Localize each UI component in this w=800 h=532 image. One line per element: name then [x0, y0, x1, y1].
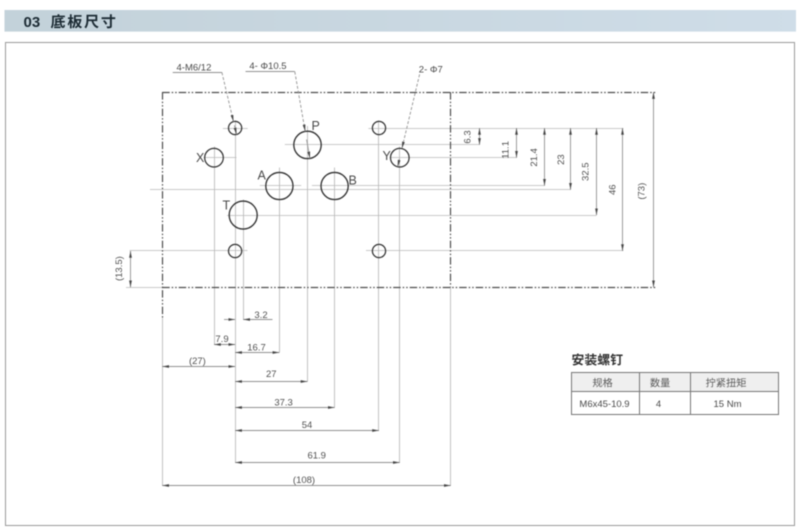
svg-text:T: T [223, 199, 231, 213]
svg-text:Y: Y [383, 149, 392, 163]
svg-text:B: B [349, 174, 357, 188]
svg-text:(73): (73) [637, 183, 648, 200]
svg-text:P: P [312, 119, 320, 133]
svg-text:61.9: 61.9 [307, 451, 326, 462]
svg-text:21.4: 21.4 [529, 148, 540, 167]
svg-text:46: 46 [608, 184, 619, 195]
svg-text:(13.5): (13.5) [114, 256, 125, 281]
svg-text:15 Nm: 15 Nm [714, 399, 742, 410]
svg-text:27: 27 [266, 369, 277, 380]
svg-text:11.1: 11.1 [501, 141, 512, 159]
svg-text:03: 03 [24, 14, 41, 31]
svg-text:6.3: 6.3 [463, 130, 474, 143]
svg-text:16.7: 16.7 [247, 343, 266, 354]
svg-text:4: 4 [656, 399, 661, 410]
svg-text:4- Φ10.5: 4- Φ10.5 [249, 61, 286, 72]
svg-text:54: 54 [302, 420, 313, 431]
svg-text:M6x45-10.9: M6x45-10.9 [579, 399, 629, 410]
svg-text:2- Φ7: 2- Φ7 [419, 65, 443, 76]
svg-text:X: X [196, 151, 205, 165]
svg-text:23: 23 [556, 154, 567, 165]
svg-text:37.3: 37.3 [274, 398, 293, 409]
svg-text:4-M6/12: 4-M6/12 [177, 63, 212, 74]
svg-text:3.2: 3.2 [254, 310, 267, 321]
svg-text:7.9: 7.9 [215, 334, 228, 345]
svg-text:32.5: 32.5 [581, 162, 592, 181]
svg-text:(27): (27) [189, 356, 206, 367]
svg-text:(108): (108) [293, 475, 315, 486]
svg-text:A: A [258, 169, 267, 183]
